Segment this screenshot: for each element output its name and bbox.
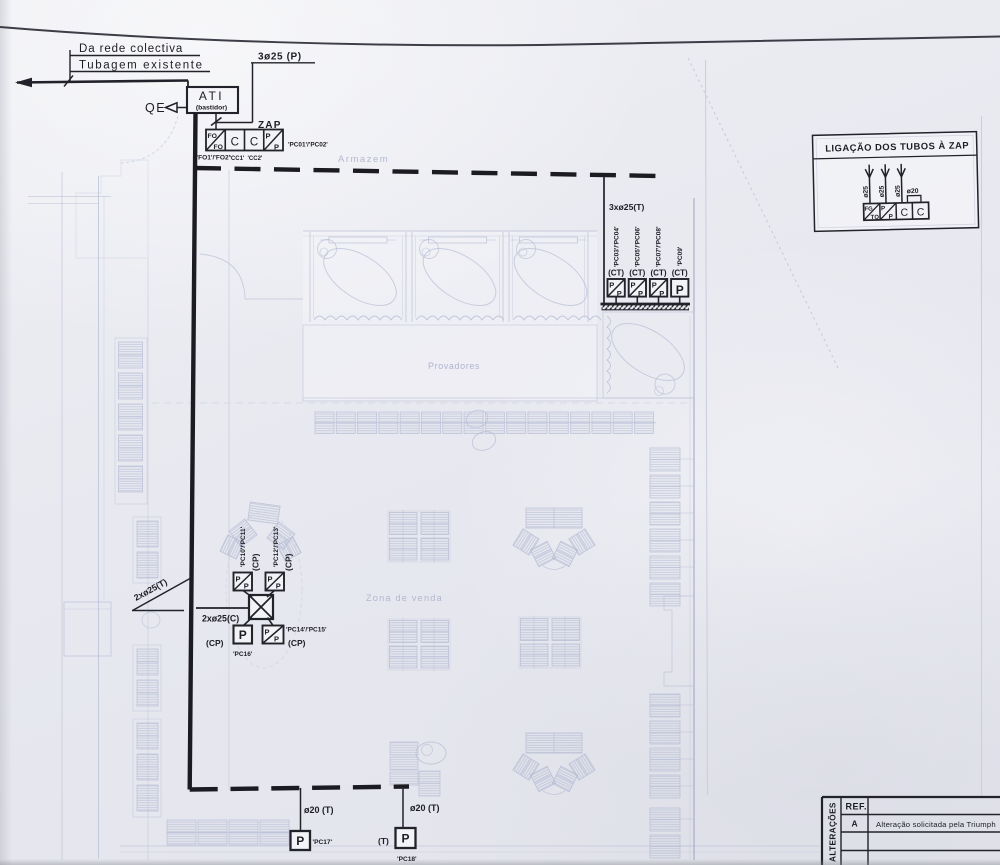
svg-text:'PC12'/'PC13': 'PC12'/'PC13' [273, 526, 280, 567]
svg-text:'PC18': 'PC18' [397, 856, 417, 863]
svg-text:(CT): (CT) [608, 269, 624, 278]
svg-text:Provadores: Provadores [428, 361, 480, 371]
svg-text:P: P [236, 574, 241, 583]
svg-text:'PC09': 'PC09' [677, 246, 684, 266]
svg-text:C: C [900, 207, 908, 219]
svg-text:'FO1'/'FO2': 'FO1'/'FO2' [197, 155, 231, 162]
svg-text:P: P [268, 574, 273, 583]
svg-text:(T): (T) [378, 836, 389, 846]
svg-text:Alteração solicitada pela Triu: Alteração solicitada pela Triumph [876, 820, 996, 829]
svg-text:ø20 (T): ø20 (T) [410, 803, 440, 813]
svg-text:REF.: REF. [846, 802, 868, 812]
svg-text:3xø25(T): 3xø25(T) [609, 202, 644, 212]
svg-text:(CP): (CP) [284, 553, 294, 571]
svg-text:'PC03'/'PC04': 'PC03'/'PC04' [613, 226, 620, 267]
svg-text:3ø25 (P): 3ø25 (P) [258, 52, 302, 63]
svg-text:FO: FO [208, 133, 217, 140]
svg-text:P: P [244, 582, 249, 591]
svg-text:'PC17': 'PC17' [313, 839, 333, 846]
svg-text:P: P [274, 143, 279, 152]
svg-text:TQ: TQ [871, 215, 880, 221]
svg-text:P: P [659, 289, 664, 298]
svg-text:2xø25(C): 2xø25(C) [202, 614, 239, 624]
svg-text:P: P [676, 283, 684, 297]
svg-text:'PC01'/'PC02': 'PC01'/'PC02' [288, 142, 328, 149]
svg-text:P: P [265, 627, 270, 636]
svg-text:P: P [239, 628, 247, 642]
svg-text:P: P [266, 132, 271, 141]
svg-text:(CT): (CT) [672, 269, 688, 278]
svg-text:(CP): (CP) [251, 553, 261, 571]
svg-text:ø25: ø25 [895, 185, 902, 197]
svg-text:P: P [274, 635, 279, 644]
svg-text:P: P [652, 281, 657, 290]
svg-text:'CC1': 'CC1' [230, 156, 245, 162]
svg-text:Zona de venda: Zona de venda [366, 593, 443, 603]
svg-text:(CP): (CP) [288, 638, 306, 648]
svg-text:C: C [231, 137, 239, 149]
svg-text:FG: FG [864, 207, 873, 213]
svg-text:ALTERAÇÕES: ALTERAÇÕES [828, 802, 838, 862]
svg-text:'PC05'/'PC06': 'PC05'/'PC06' [635, 226, 642, 267]
svg-text:QE: QE [145, 101, 166, 115]
svg-text:ø20: ø20 [907, 188, 919, 195]
svg-text:'PC16': 'PC16' [233, 651, 253, 658]
svg-text:(CT): (CT) [629, 269, 645, 278]
svg-text:'PC07'/'PC08': 'PC07'/'PC08' [656, 226, 663, 267]
svg-text:(CT): (CT) [651, 269, 667, 278]
svg-text:2xø25(T): 2xø25(T) [132, 577, 169, 603]
svg-text:(bastidor): (bastidor) [196, 105, 227, 112]
svg-text:P: P [609, 281, 614, 290]
svg-text:Armazem: Armazem [338, 154, 389, 165]
svg-text:C: C [250, 137, 258, 149]
svg-text:FO: FO [214, 144, 223, 151]
svg-text:'PC14'/'PC15': 'PC14'/'PC15' [286, 627, 327, 634]
svg-text:P: P [617, 289, 622, 298]
svg-text:P: P [638, 289, 643, 298]
svg-text:P: P [631, 281, 636, 290]
svg-text:ATI: ATI [199, 89, 224, 103]
svg-text:Tubagem existente: Tubagem existente [79, 60, 204, 72]
svg-text:C: C [917, 206, 925, 218]
svg-text:ø20 (T): ø20 (T) [304, 805, 334, 815]
svg-text:ø25: ø25 [863, 186, 870, 198]
svg-text:P: P [401, 832, 409, 846]
svg-text:'PC10'/'PC11': 'PC10'/'PC11' [240, 526, 247, 567]
svg-text:P: P [276, 582, 281, 591]
svg-text:Da rede colectiva: Da rede colectiva [79, 43, 183, 55]
svg-text:ø25: ø25 [879, 185, 886, 197]
svg-text:A: A [852, 819, 858, 829]
svg-text:P: P [296, 834, 304, 848]
svg-text:(CP): (CP) [206, 638, 224, 648]
svg-text:'CC2': 'CC2' [248, 156, 263, 162]
